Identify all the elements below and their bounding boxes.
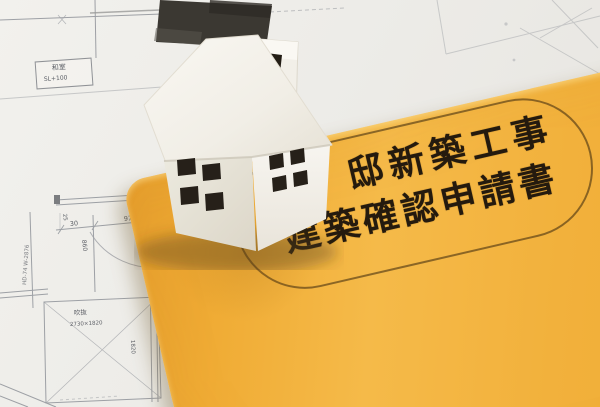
blueprint-line: [437, 0, 446, 54]
window-icon: [177, 158, 196, 176]
window-icon: [290, 148, 305, 165]
roof: [144, 35, 332, 163]
blueprint-dot: [504, 22, 507, 25]
void-room-cross: [44, 297, 161, 403]
blueprint-line: [552, 0, 598, 48]
blueprint-tick: [58, 15, 66, 24]
house-model: [134, 26, 344, 270]
blueprint-line: [30, 212, 33, 308]
wall-double-line: [0, 289, 48, 298]
dim-25: 25: [61, 213, 68, 221]
side-note: HD-74 W-2876: [22, 244, 31, 285]
photo-scene: 和室 SL+100 30 973 25 860 1820 HD-74 W-287…: [0, 0, 600, 407]
blueprint-dashed-line: [60, 396, 120, 400]
dim-30: 30: [69, 219, 78, 228]
wall-end-cap: [54, 195, 60, 204]
window-icon: [272, 175, 287, 192]
window-icon: [205, 192, 224, 211]
blueprint-dashed-line: [270, 8, 345, 12]
blueprint-line: [0, 14, 162, 20]
window-icon: [293, 170, 308, 187]
void-room-dims: 2730×1820: [70, 320, 103, 328]
blueprint-line: [0, 384, 56, 407]
room-label-title: 和室: [52, 62, 67, 72]
window-icon: [180, 186, 199, 205]
void-room-label: 吹抜: [74, 307, 88, 317]
blueprint-line: [520, 28, 600, 74]
dim-1820: 1820: [129, 340, 136, 355]
window-icon: [269, 153, 284, 170]
blueprint-line: [95, 0, 96, 58]
dim-860: 860: [80, 239, 88, 251]
window-icon: [202, 163, 221, 181]
blueprint-line: [446, 16, 600, 54]
blueprint-dot: [513, 59, 516, 62]
